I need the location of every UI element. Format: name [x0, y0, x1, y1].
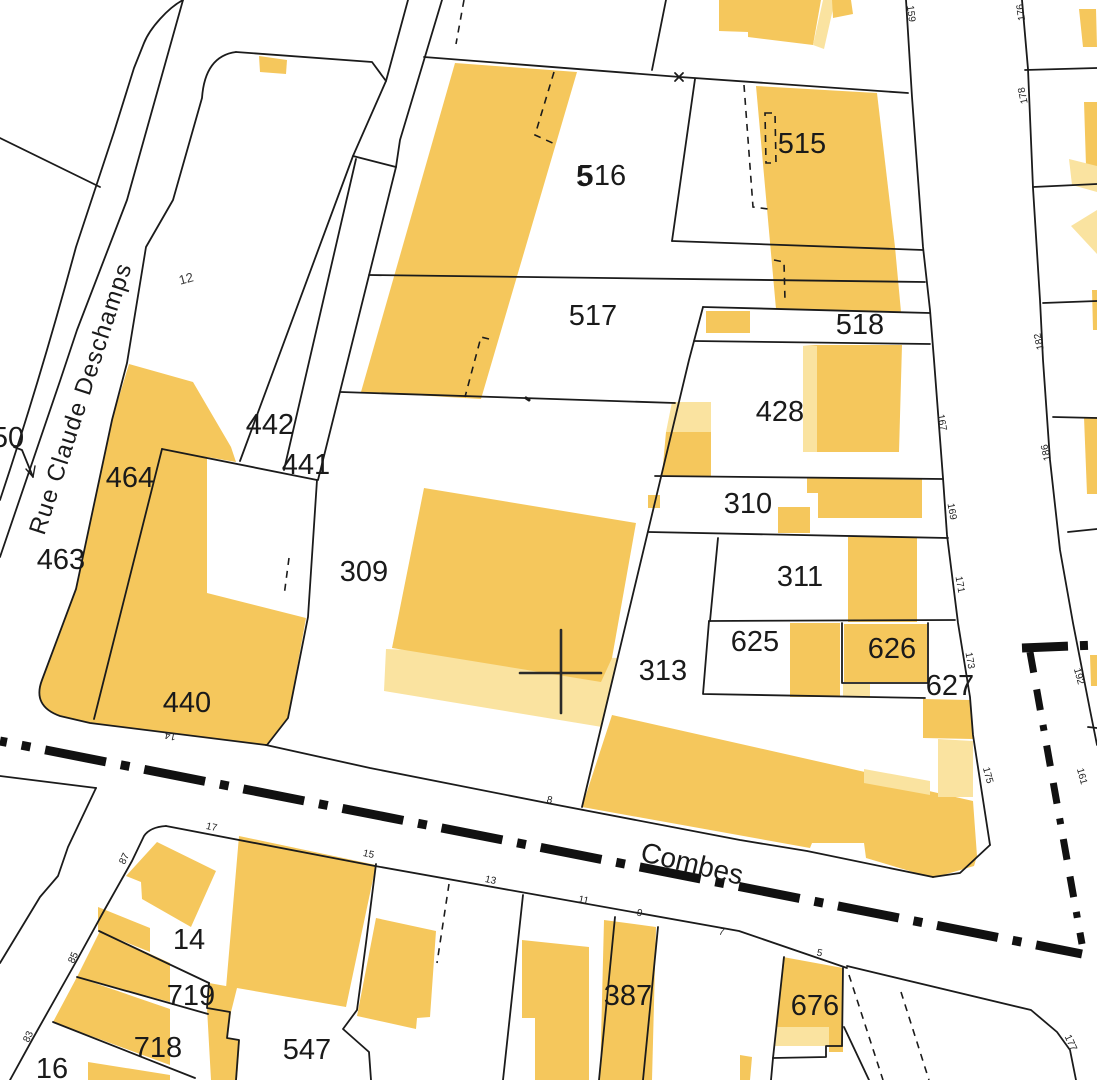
svg-text:464: 464	[106, 462, 154, 494]
svg-text:313: 313	[639, 655, 687, 687]
svg-text:440: 440	[163, 687, 211, 719]
svg-text:515: 515	[778, 128, 826, 160]
svg-text:463: 463	[37, 544, 85, 576]
svg-text:428: 428	[756, 396, 804, 428]
svg-text:14: 14	[173, 924, 205, 956]
svg-text:676: 676	[791, 990, 839, 1022]
svg-text:50: 50	[0, 422, 24, 454]
svg-text:625: 625	[731, 626, 779, 658]
svg-text:517: 517	[569, 300, 617, 332]
svg-text:310: 310	[724, 488, 772, 520]
svg-text:16: 16	[36, 1053, 68, 1080]
svg-text:718: 718	[134, 1032, 182, 1064]
svg-text:627: 627	[926, 670, 974, 702]
svg-text:387: 387	[604, 980, 652, 1012]
svg-text:518: 518	[836, 309, 884, 341]
svg-text:5: 5	[576, 161, 592, 193]
svg-text:311: 311	[777, 561, 823, 593]
svg-text:547: 547	[283, 1034, 331, 1066]
svg-text:159: 159	[904, 5, 917, 23]
svg-text:442: 442	[246, 409, 294, 441]
svg-text:309: 309	[340, 556, 388, 588]
svg-text:719: 719	[167, 980, 215, 1012]
svg-text:626: 626	[868, 633, 916, 665]
svg-text:441: 441	[282, 449, 330, 481]
